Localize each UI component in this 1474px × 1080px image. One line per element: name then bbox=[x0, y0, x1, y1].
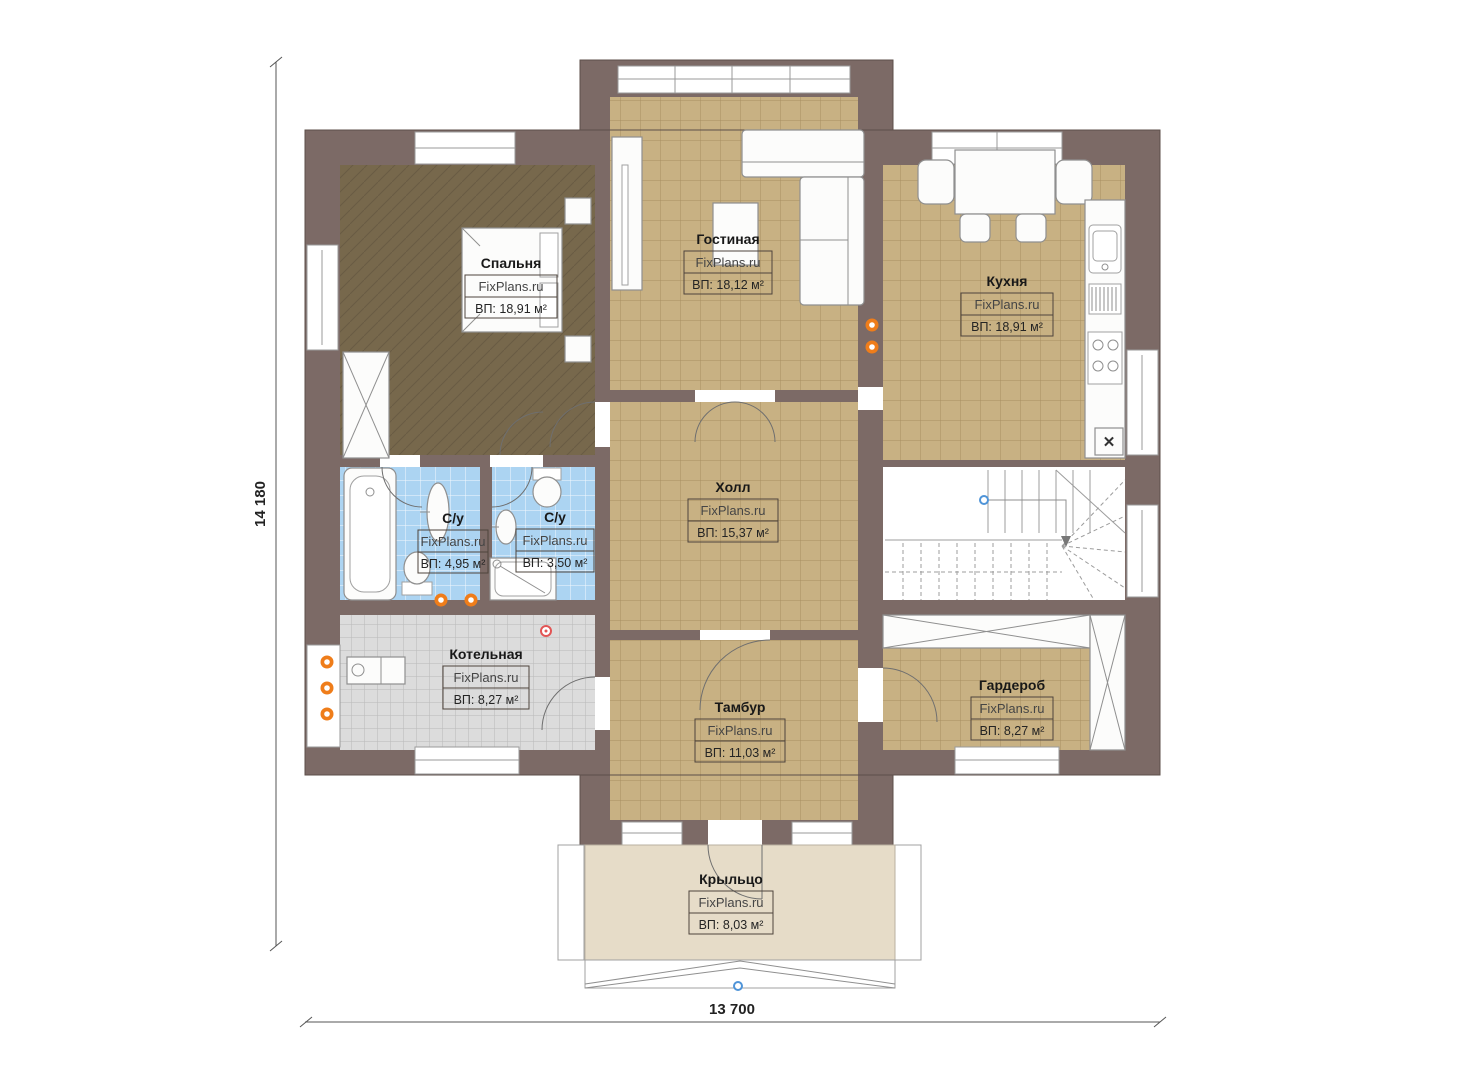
watermark-text: FixPlans.ru bbox=[453, 670, 518, 685]
bedroom-wardrobe-cabinet bbox=[343, 352, 389, 458]
watermark-text: FixPlans.ru bbox=[522, 533, 587, 548]
kitchen-passage-opening bbox=[858, 387, 883, 410]
chair-bottom-1 bbox=[960, 214, 990, 242]
watermark-text: FixPlans.ru bbox=[700, 503, 765, 518]
chair-bottom-2 bbox=[1016, 214, 1046, 242]
room-area: ВП: 8,27 м² bbox=[980, 724, 1045, 738]
porch-marker-dot bbox=[734, 982, 742, 990]
radiator-icon bbox=[465, 594, 478, 607]
dimension-left: 14 180 bbox=[252, 57, 282, 951]
wardrobe-cabinet-right bbox=[1090, 615, 1125, 750]
watermark-text: FixPlans.ru bbox=[420, 534, 485, 549]
watermark-text: FixPlans.ru bbox=[707, 723, 772, 738]
room-name: Кухня bbox=[987, 273, 1028, 289]
boiler-door-opening bbox=[595, 677, 610, 730]
kitchen-sink bbox=[1089, 225, 1121, 273]
tv-cabinet bbox=[612, 137, 642, 290]
boiler-unit bbox=[347, 657, 405, 684]
smoke-detector-dot bbox=[545, 630, 548, 633]
bedroom-left-window bbox=[307, 245, 338, 350]
bath2-toilet bbox=[533, 468, 561, 507]
living-room-window bbox=[618, 66, 850, 93]
stair-start-dot bbox=[980, 496, 988, 504]
boiler-bottom-window bbox=[415, 747, 519, 774]
floor-plan-page: ✕ bbox=[0, 0, 1474, 1080]
front-door-opening bbox=[708, 820, 762, 845]
watermark-text: FixPlans.ru bbox=[698, 895, 763, 910]
wardrobe-door-opening bbox=[858, 668, 883, 722]
room-name: Гардероб bbox=[979, 677, 1046, 693]
chair-left bbox=[918, 160, 954, 204]
room-name: Котельная bbox=[449, 646, 522, 662]
kitchen-right-window bbox=[1127, 350, 1158, 455]
vestibule-door-opening bbox=[700, 630, 770, 640]
radiator-icon bbox=[435, 594, 448, 607]
room-name: Спальня bbox=[481, 255, 541, 271]
room-area: ВП: 8,03 м² bbox=[699, 918, 764, 932]
chair-right bbox=[1056, 160, 1092, 204]
room-name: С/у bbox=[544, 509, 566, 525]
floor-plan-drawing: ✕ bbox=[0, 0, 1474, 1080]
radiator-icon bbox=[321, 656, 334, 669]
dishwasher bbox=[1089, 284, 1121, 314]
room-label-wardrobe: Гардероб FixPlans.ru ВП: 8,27 м² bbox=[971, 677, 1053, 740]
watermark-text: FixPlans.ru bbox=[478, 279, 543, 294]
nightstand-bottom bbox=[565, 336, 591, 362]
radiator-icon bbox=[321, 708, 334, 721]
vestibule-front-window-right bbox=[792, 822, 852, 845]
room-area: ВП: 18,91 м² bbox=[475, 302, 547, 316]
room-area: ВП: 8,27 м² bbox=[454, 693, 519, 707]
room-area: ВП: 18,91 м² bbox=[971, 320, 1043, 334]
radiator-icon bbox=[866, 319, 879, 332]
room-label-living: Гостиная FixPlans.ru ВП: 18,12 м² bbox=[684, 231, 772, 294]
vestibule-front-window-left bbox=[622, 822, 682, 845]
room-area: ВП: 4,95 м² bbox=[421, 557, 486, 571]
room-area: ВП: 3,50 м² bbox=[523, 556, 588, 570]
dimension-left-value: 14 180 bbox=[252, 481, 269, 527]
room-area: ВП: 11,03 м² bbox=[705, 746, 776, 760]
room-label-porch: Крыльцо FixPlans.ru ВП: 8,03 м² bbox=[689, 871, 773, 934]
room-name: Холл bbox=[715, 479, 750, 495]
fridge-x-marker: ✕ bbox=[1095, 428, 1123, 455]
dimension-bottom-value: 13 700 bbox=[709, 1001, 755, 1018]
dining-table bbox=[955, 150, 1055, 214]
watermark-text: FixPlans.ru bbox=[979, 701, 1044, 716]
bed-pillow-top bbox=[540, 233, 558, 277]
radiator-icon bbox=[321, 682, 334, 695]
room-name: С/у bbox=[442, 510, 464, 526]
bedroom-second-door-opening bbox=[500, 455, 543, 467]
room-label-boiler: Котельная FixPlans.ru ВП: 8,27 м² bbox=[443, 646, 529, 709]
room-name: Тамбур bbox=[715, 699, 766, 715]
x-marker-glyph: ✕ bbox=[1103, 434, 1116, 451]
room-area: ВП: 18,12 м² bbox=[692, 278, 764, 292]
porch-side-column-left bbox=[558, 845, 584, 960]
dimension-bottom: 13 700 bbox=[300, 1001, 1166, 1027]
room-name: Гостиная bbox=[696, 231, 759, 247]
room-name: Крыльцо bbox=[699, 871, 763, 887]
bedroom-top-window bbox=[415, 132, 515, 164]
bedroom-door-opening bbox=[595, 402, 610, 447]
wardrobe-bottom-window bbox=[955, 747, 1059, 774]
porch-side-column-right bbox=[895, 845, 921, 960]
watermark-text: FixPlans.ru bbox=[974, 297, 1039, 312]
room-area: ВП: 15,37 м² bbox=[697, 526, 769, 540]
stove bbox=[1088, 332, 1122, 384]
radiator-icon bbox=[866, 341, 879, 354]
nightstand-top bbox=[565, 198, 591, 224]
wardrobe-cabinet-top bbox=[883, 615, 1090, 648]
stairwell-right-window bbox=[1127, 505, 1158, 597]
living-double-door-opening bbox=[695, 390, 775, 402]
watermark-text: FixPlans.ru bbox=[695, 255, 760, 270]
